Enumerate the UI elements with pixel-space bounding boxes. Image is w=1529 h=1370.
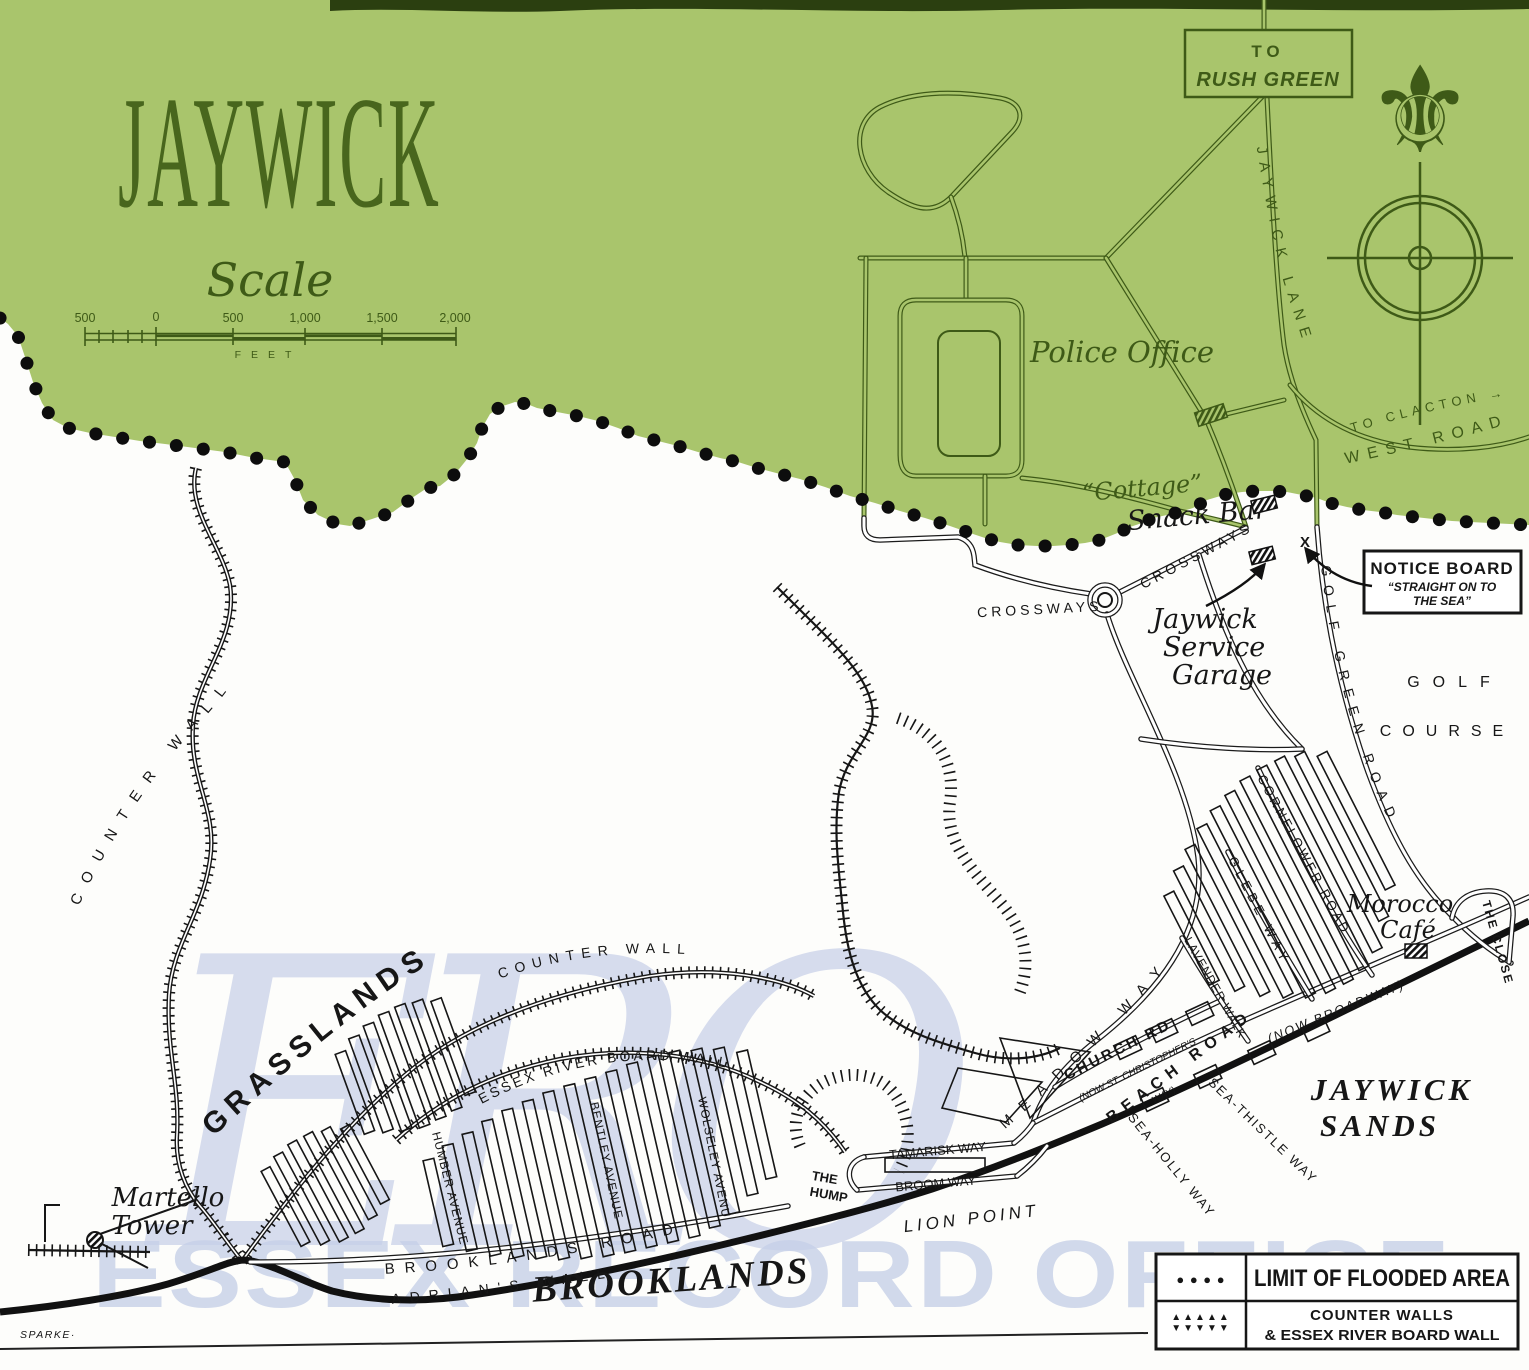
fleur-de-lis-icon: ⚜ [1366, 42, 1474, 181]
svg-text:1,000: 1,000 [289, 311, 320, 325]
svg-text:1,500: 1,500 [366, 311, 397, 325]
x-marker: X [1300, 534, 1310, 551]
legend-row1-label: LIMIT OF FLOODED AREA [1254, 1265, 1510, 1292]
legend-dots-symbol: ● ● ● ● [1176, 1272, 1225, 1287]
legend-hatch-symbol-up: ▲▲▲▲▲ [1171, 1312, 1231, 1323]
scale-unit: FEET [235, 349, 302, 361]
police-office-label: Police Office [1029, 335, 1214, 369]
rush-green-sign: TO RUSH GREEN [1185, 30, 1352, 97]
golf-course-label-2: COURSE [1380, 723, 1514, 740]
legend-row2-label-1: COUNTER WALLS [1310, 1307, 1454, 1324]
svg-text:“STRAIGHT ON TO: “STRAIGHT ON TO [1388, 580, 1497, 594]
svg-text:NOTICE BOARD: NOTICE BOARD [1370, 559, 1513, 578]
svg-text:0: 0 [153, 310, 160, 324]
svg-text:Tower: Tower [111, 1211, 194, 1241]
svg-text:500: 500 [75, 311, 96, 325]
scale-label: Scale [207, 253, 334, 307]
svg-text:JAYWICK: JAYWICK [1310, 1072, 1473, 1107]
morocco-cafe-building [1405, 944, 1427, 958]
cartographer-credit: SPARKE· [20, 1329, 76, 1341]
svg-text:RUSH GREEN: RUSH GREEN [1196, 69, 1339, 91]
svg-text:THE SEA”: THE SEA” [1413, 594, 1471, 608]
svg-text:2,000: 2,000 [439, 311, 470, 325]
svg-text:TO: TO [1251, 42, 1284, 61]
svg-text:Garage: Garage [1172, 660, 1272, 691]
svg-text:Martello: Martello [111, 1183, 225, 1213]
map-legend: ● ● ● ● LIMIT OF FLOODED AREA ▲▲▲▲▲ ▼▼▼▼… [1156, 1254, 1518, 1349]
svg-text:Café: Café [1380, 916, 1436, 944]
map-page: ⚜ JAYWICK Scale 500 0 500 1,000 1,500 2,… [0, 0, 1529, 1370]
svg-text:Jaywick: Jaywick [1147, 604, 1257, 635]
svg-text:Morocco: Morocco [1346, 890, 1453, 918]
svg-text:Service: Service [1163, 632, 1265, 663]
map-top-edge [330, 0, 1529, 12]
svg-text:SANDS: SANDS [1320, 1108, 1440, 1143]
map-title: JAYWICK [118, 64, 441, 241]
martello-tower-marker [87, 1232, 103, 1248]
map-canvas: ⚜ JAYWICK Scale 500 0 500 1,000 1,500 2,… [0, 0, 1529, 1370]
svg-text:500: 500 [223, 311, 244, 325]
notice-board-sign: NOTICE BOARD “STRAIGHT ON TO THE SEA” [1364, 551, 1521, 613]
legend-row2-label-2: & ESSEX RIVER BOARD WALL [1265, 1327, 1500, 1344]
legend-hatch-symbol-down: ▼▼▼▼▼ [1171, 1323, 1231, 1334]
golf-course-label-1: GOLF [1407, 674, 1503, 691]
